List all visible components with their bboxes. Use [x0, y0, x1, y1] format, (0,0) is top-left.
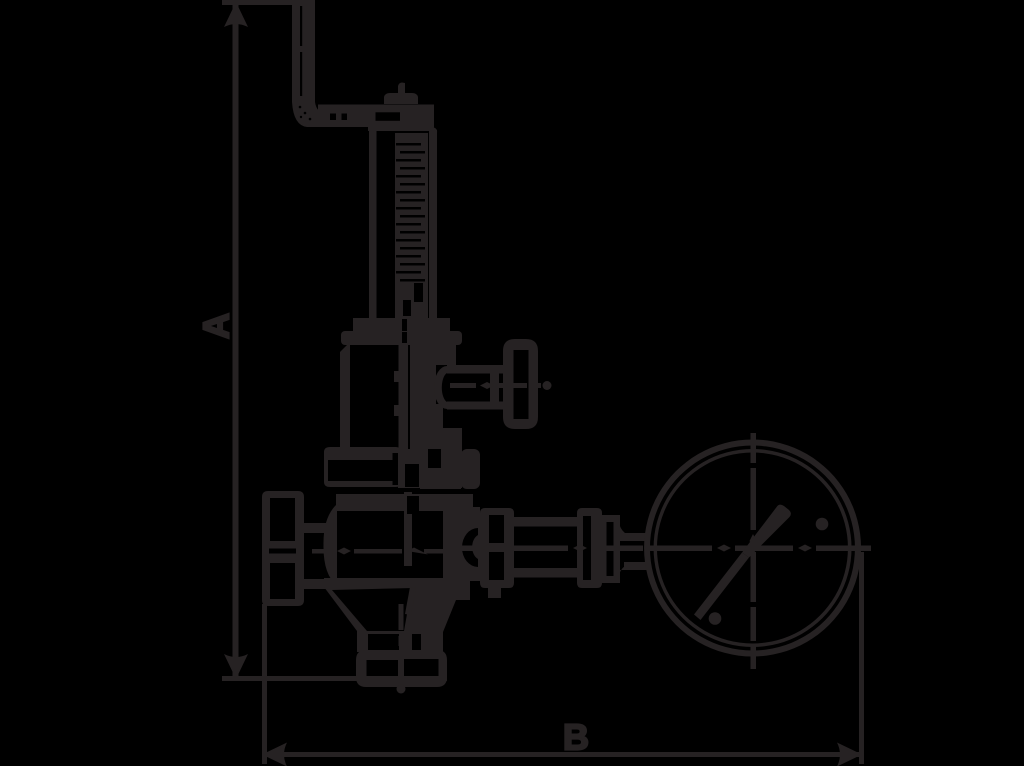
svg-text:B: B [563, 717, 589, 758]
svg-text:A: A [196, 313, 237, 339]
